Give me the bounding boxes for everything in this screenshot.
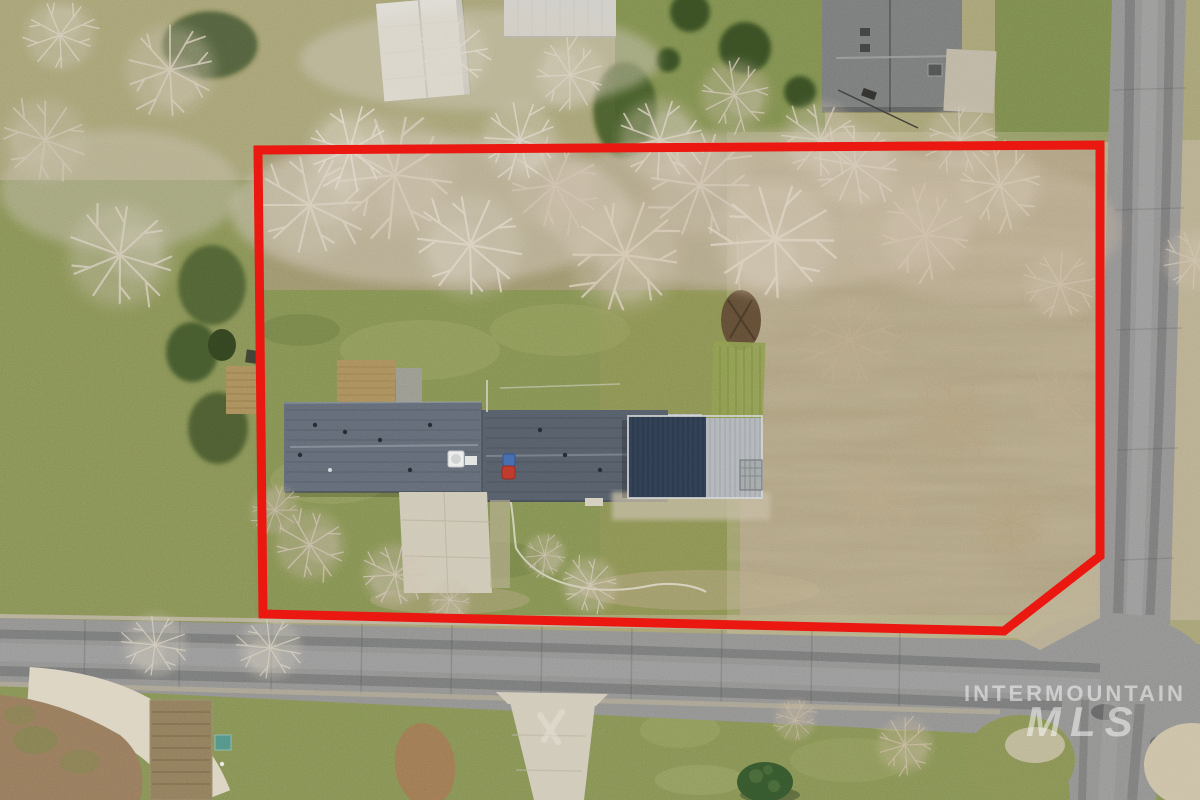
aerial-property-photo: INTERMOUNTAIN MLS: [0, 0, 1200, 800]
photo-canvas: [0, 0, 1200, 800]
photo-grain: [0, 0, 1200, 800]
